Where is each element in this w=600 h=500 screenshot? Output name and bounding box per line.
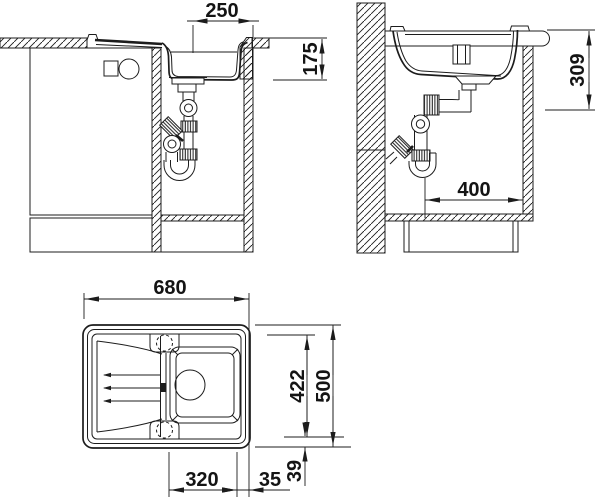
dimension-label-35: 35 (259, 469, 281, 491)
dimension-label-500: 500 (313, 369, 335, 402)
cabinet-plinth-front (30, 218, 152, 252)
faucet-hole-top-circle (157, 335, 173, 351)
u-bend (164, 160, 195, 180)
cabinet-door (30, 48, 152, 215)
side-drain-trap (386, 76, 501, 177)
dimension-175: 175 (269, 38, 327, 80)
countertop-section-left (0, 38, 87, 48)
faucet-hole-bottom-circle (157, 422, 173, 438)
dimension-label-680: 680 (153, 277, 186, 299)
faucet-hole-bottom (150, 421, 179, 439)
drainboard (97, 341, 162, 432)
dimension-label-422: 422 (287, 369, 309, 402)
front-section-view: 250 175 (0, 0, 327, 252)
sink-installation-drawing: 250 175 (0, 0, 600, 500)
bowl-plan (170, 347, 240, 423)
dimension-400: 400 (425, 178, 523, 218)
drain-flange (172, 78, 204, 84)
dimension-label-400: 400 (457, 179, 490, 201)
dimension-label-320: 320 (185, 469, 218, 491)
front-drain-trap (160, 78, 207, 181)
cabinet-wall-right (244, 48, 253, 252)
drain-grooves (103, 373, 160, 403)
side-trap-nut-1 (424, 95, 439, 115)
divider-clip (160, 383, 166, 392)
cabinet-side-shelf (385, 214, 533, 221)
faucet-hole-top (150, 334, 179, 352)
drainboard-section (95, 40, 162, 44)
cabinet-wall-left (152, 48, 161, 252)
side-section-view: 309 400 (357, 3, 595, 253)
dimension-label-39: 39 (284, 460, 306, 482)
trap-joint-upper (180, 100, 197, 117)
technical-drawing-svg: 250 175 (0, 0, 600, 500)
overflow-fitting (453, 45, 470, 64)
dimension-39: 39 (284, 425, 306, 486)
cabinet-shelf (161, 215, 244, 221)
cabinet-side-wall (523, 46, 533, 214)
countertop-section-right (252, 38, 269, 48)
bowl-drain-circle (175, 370, 205, 400)
dimension-label-175: 175 (300, 42, 322, 75)
trap-nut-2 (180, 149, 197, 160)
dimension-35: 35 (224, 469, 290, 491)
side-trap-joint (412, 115, 430, 133)
countertop-side (385, 31, 550, 46)
dimension-label-309: 309 (567, 53, 589, 86)
trap-joint-lower (164, 136, 181, 153)
cabinet-front (30, 48, 253, 252)
dimension-309: 309 (545, 30, 595, 110)
top-plan-view: 680 500 422 320 (83, 277, 351, 497)
side-wall-connector (391, 136, 414, 159)
bowl-section (162, 38, 253, 81)
wall-section (357, 3, 385, 253)
dimension-label-250: 250 (205, 0, 238, 22)
trap-nut-1 (181, 121, 197, 132)
cabinet-side-plinth (404, 221, 518, 252)
side-trap-nut-2 (412, 150, 430, 161)
